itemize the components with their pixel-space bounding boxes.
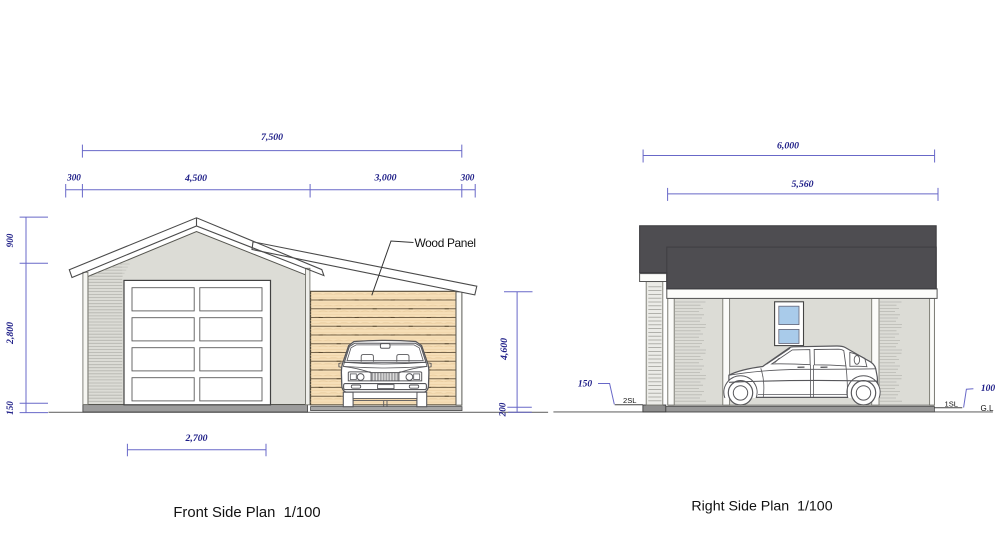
svg-text:4,500: 4,500 (184, 173, 207, 184)
svg-text:Wood Panel: Wood Panel (415, 236, 477, 250)
svg-text:5,560: 5,560 (791, 179, 813, 190)
svg-text:7,500: 7,500 (261, 132, 283, 143)
svg-text:6,000: 6,000 (777, 141, 799, 152)
svg-text:G.L: G.L (981, 404, 994, 413)
svg-text:2,800: 2,800 (5, 322, 16, 345)
svg-text:900: 900 (5, 233, 15, 247)
svg-text:100: 100 (981, 384, 996, 394)
svg-text:1SL: 1SL (945, 399, 959, 408)
svg-text:3,000: 3,000 (373, 173, 396, 184)
svg-text:4,600: 4,600 (499, 338, 510, 361)
svg-text:2,700: 2,700 (184, 433, 207, 444)
svg-text:Front Side Plan 1/100: Front Side Plan 1/100 (173, 505, 320, 521)
svg-text:150: 150 (578, 380, 593, 390)
svg-text:Right Side Plan 1/100: Right Side Plan 1/100 (691, 499, 832, 515)
svg-text:2SL: 2SL (623, 396, 637, 405)
svg-text:150: 150 (5, 401, 15, 415)
svg-text:300: 300 (66, 173, 81, 183)
svg-text:300: 300 (460, 173, 475, 183)
svg-text:200: 200 (498, 402, 508, 417)
